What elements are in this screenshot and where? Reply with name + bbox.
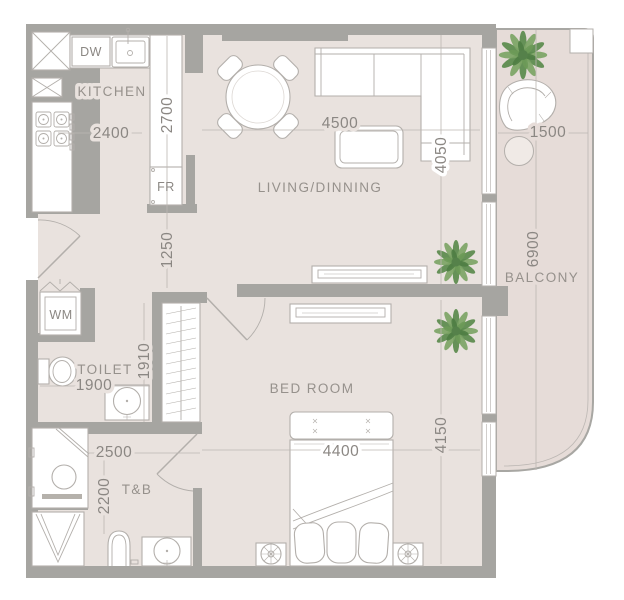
wall-wardrobe-top [152, 292, 207, 303]
tv-console-icon [290, 304, 391, 323]
balcony-ledge [570, 29, 593, 53]
room-label-living-dining: LIVING/DINNING [258, 180, 383, 195]
tb-toilet-icon [108, 531, 130, 566]
nightstand-icon [393, 543, 423, 566]
shower-icon [29, 428, 89, 508]
floor-plan-drawing: 2400 2700 1250 4500 4050 1500 6900 1900 … [0, 0, 624, 600]
room-label-bedroom: BED ROOM [270, 381, 355, 396]
appliance-label-fridge: FR [157, 180, 175, 194]
dim-label-balcony-width: 1500 [530, 124, 566, 141]
window-living [482, 48, 496, 194]
window-bedroom-2 [482, 422, 496, 476]
window-living-2 [482, 202, 496, 286]
coffee-table-icon [335, 126, 403, 168]
wall-kitchen-stub [185, 24, 203, 73]
window-mullion-living [482, 194, 496, 202]
dim-label-balcony-length: 6900 [525, 231, 542, 267]
appliance-label-washing-machine: WM [49, 308, 72, 322]
pillow-icon [358, 522, 390, 564]
dining-table-icon [215, 53, 301, 141]
dim-label-bedroom-length: 4150 [433, 417, 450, 453]
dim-label-living-width: 4500 [322, 115, 358, 132]
nightstand-icon [256, 543, 286, 566]
entry-opening [26, 218, 38, 280]
shaft-icon [32, 512, 84, 566]
wall-wardrobe-left [152, 292, 162, 422]
toilet-icon [38, 357, 76, 386]
pillow-icon [294, 522, 326, 564]
wall-tb-right [193, 488, 202, 568]
wall-living-bedroom-divider [237, 284, 482, 297]
dim-label-kitchen-width: 2400 [93, 125, 129, 142]
room-label-kitchen: KITCHEN [77, 84, 146, 99]
dim-label-kitchen-length: 2700 [159, 97, 176, 133]
dim-label-toilet-width: 1900 [76, 377, 112, 394]
wall-right-top [482, 24, 496, 50]
window-bedroom [482, 316, 496, 414]
floor-plan: 2400 2700 1250 4500 4050 1500 6900 1900 … [0, 0, 624, 600]
dim-label-bedroom-width: 4400 [323, 443, 359, 460]
dim-label-hallway-length: 1250 [159, 232, 176, 268]
tv-console-icon [312, 266, 427, 283]
wall-right-mid [482, 286, 496, 316]
wardrobe-icon [162, 303, 200, 422]
dim-label-toilet-length: 1910 [136, 343, 153, 379]
appliance-label-dishwasher: DW [80, 45, 102, 59]
pillow-icon [327, 522, 356, 563]
wall-bottom [26, 566, 496, 578]
dim-label-tb-length: 2200 [96, 478, 113, 514]
room-label-toilet: TOILET [77, 362, 132, 377]
wall-top-thick [222, 24, 348, 41]
room-label-tb: T&B [122, 482, 152, 497]
bench-icon [290, 412, 393, 439]
window-mullion-bedroom [482, 414, 496, 422]
room-label-balcony: BALCONY [505, 270, 579, 285]
wall-balcony-stub [496, 286, 508, 316]
dim-label-tb-width: 2500 [96, 444, 132, 461]
wall-right-bottom [482, 476, 496, 578]
dim-label-living-length: 4050 [433, 137, 450, 173]
windows [482, 48, 496, 476]
